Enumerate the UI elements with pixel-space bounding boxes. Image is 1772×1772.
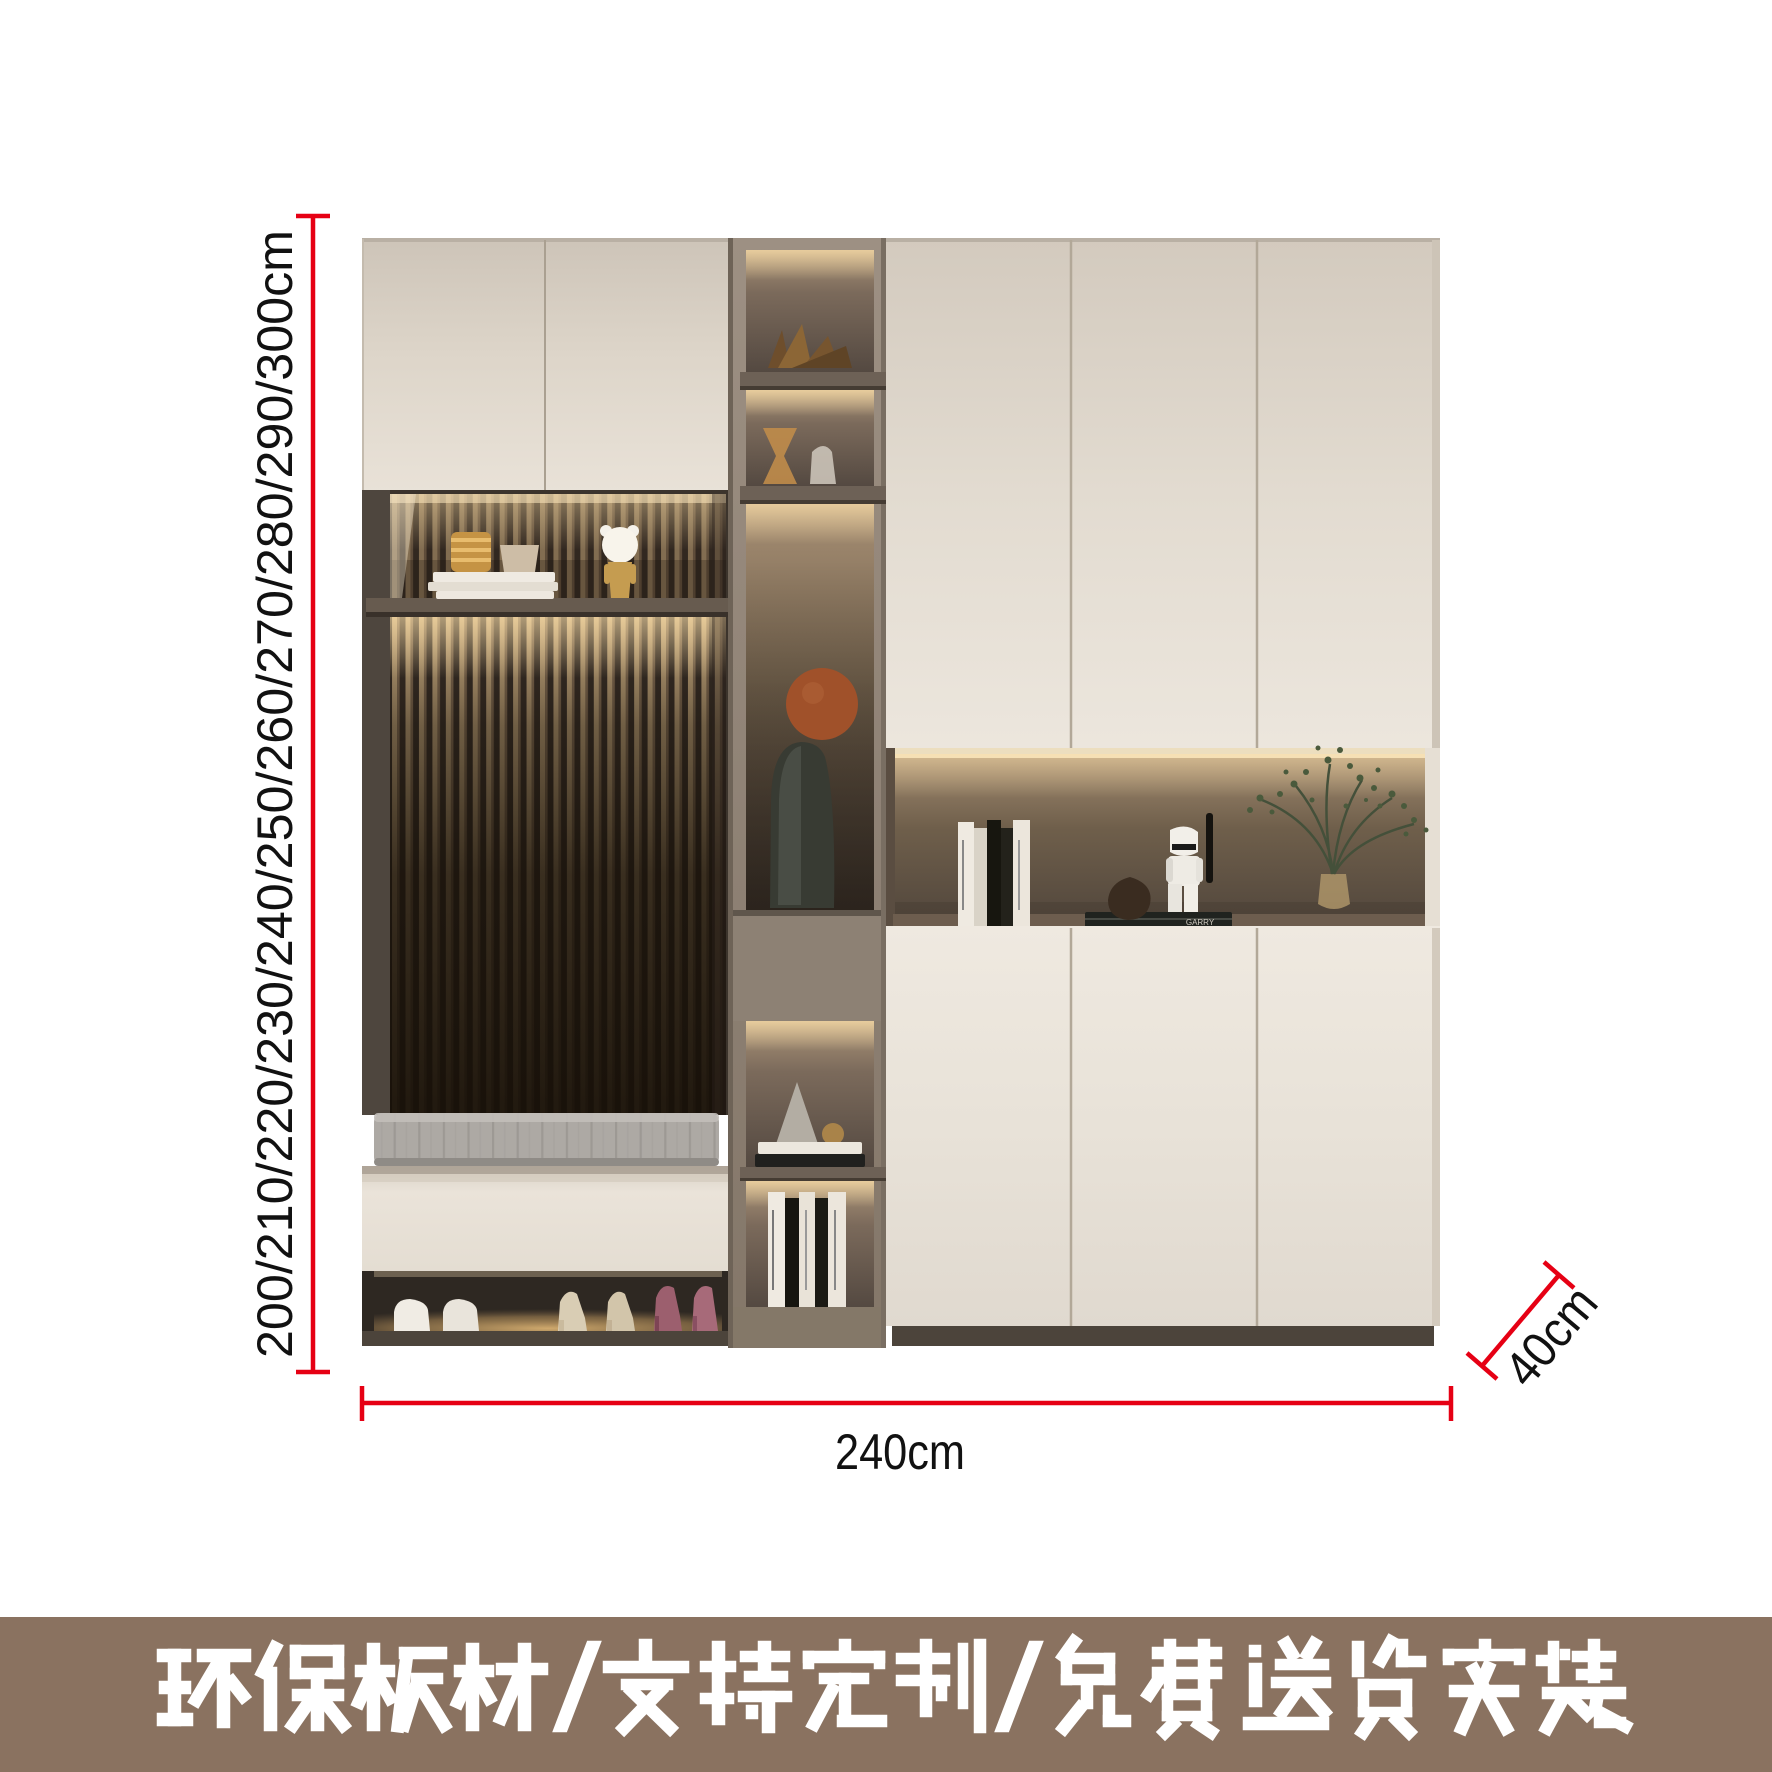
svg-text:240cm: 240cm <box>835 1424 965 1480</box>
svg-text:200/210/220/230/240/250/260/27: 200/210/220/230/240/250/260/270/280/290/… <box>247 230 303 1358</box>
svg-text:GARRY: GARRY <box>1186 918 1215 927</box>
